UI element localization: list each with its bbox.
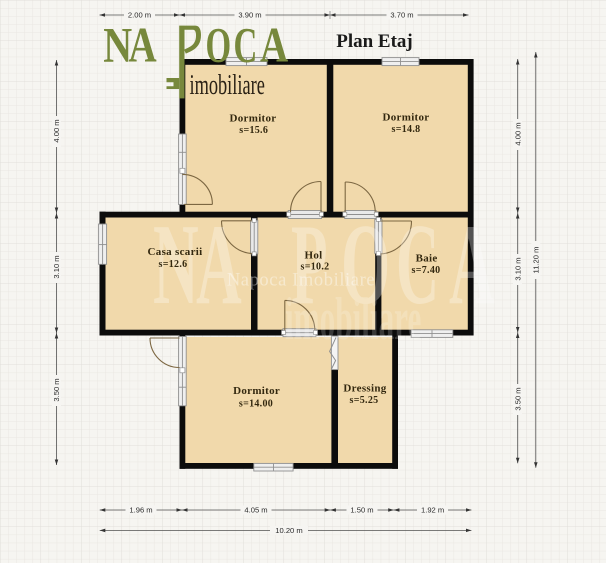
svg-text:1.50 m: 1.50 m [350, 506, 373, 515]
svg-text:Napoca Imobiliare: Napoca Imobiliare [227, 271, 375, 291]
svg-text:s=14.00: s=14.00 [239, 398, 273, 409]
svg-text:Dormitor: Dormitor [383, 112, 430, 124]
svg-text:2.00 m: 2.00 m [128, 11, 151, 20]
svg-text:s=10.2: s=10.2 [301, 262, 330, 273]
svg-text:s=7.40: s=7.40 [412, 265, 441, 276]
svg-text:3.10 m: 3.10 m [52, 255, 61, 278]
svg-text:Hol: Hol [304, 250, 322, 262]
svg-text:11.20 m: 11.20 m [532, 247, 541, 274]
svg-text:3.70 m: 3.70 m [390, 11, 413, 20]
svg-text:A: A [449, 201, 495, 329]
svg-text:3.50 m: 3.50 m [513, 387, 522, 410]
svg-text:1.96 m: 1.96 m [129, 506, 152, 515]
svg-text:Casa scarii: Casa scarii [148, 246, 203, 258]
svg-text:3.90 m: 3.90 m [238, 11, 261, 20]
svg-text:Dormitor: Dormitor [233, 385, 280, 397]
svg-text:Baie: Baie [416, 253, 438, 265]
svg-text:1.92 m: 1.92 m [421, 506, 444, 515]
svg-text:imobiliare: imobiliare [285, 286, 421, 352]
svg-text:4.05 m: 4.05 m [244, 506, 267, 515]
svg-text:s=15.6: s=15.6 [239, 125, 268, 136]
svg-text:s=14.8: s=14.8 [392, 124, 421, 135]
svg-text:Dressing: Dressing [343, 383, 386, 395]
svg-text:3.50 m: 3.50 m [52, 378, 61, 401]
svg-text:Dormitor: Dormitor [230, 113, 277, 125]
svg-text:Plan Etaj: Plan Etaj [336, 31, 413, 52]
svg-text:s=12.6: s=12.6 [159, 259, 188, 270]
svg-text:4.00 m: 4.00 m [52, 119, 61, 142]
svg-text:3.10 m: 3.10 m [513, 257, 522, 280]
svg-text:s=5.25: s=5.25 [350, 395, 379, 406]
svg-text:4.00 m: 4.00 m [513, 122, 522, 145]
svg-text:A: A [196, 201, 242, 329]
svg-text:10.20 m: 10.20 m [275, 526, 302, 535]
